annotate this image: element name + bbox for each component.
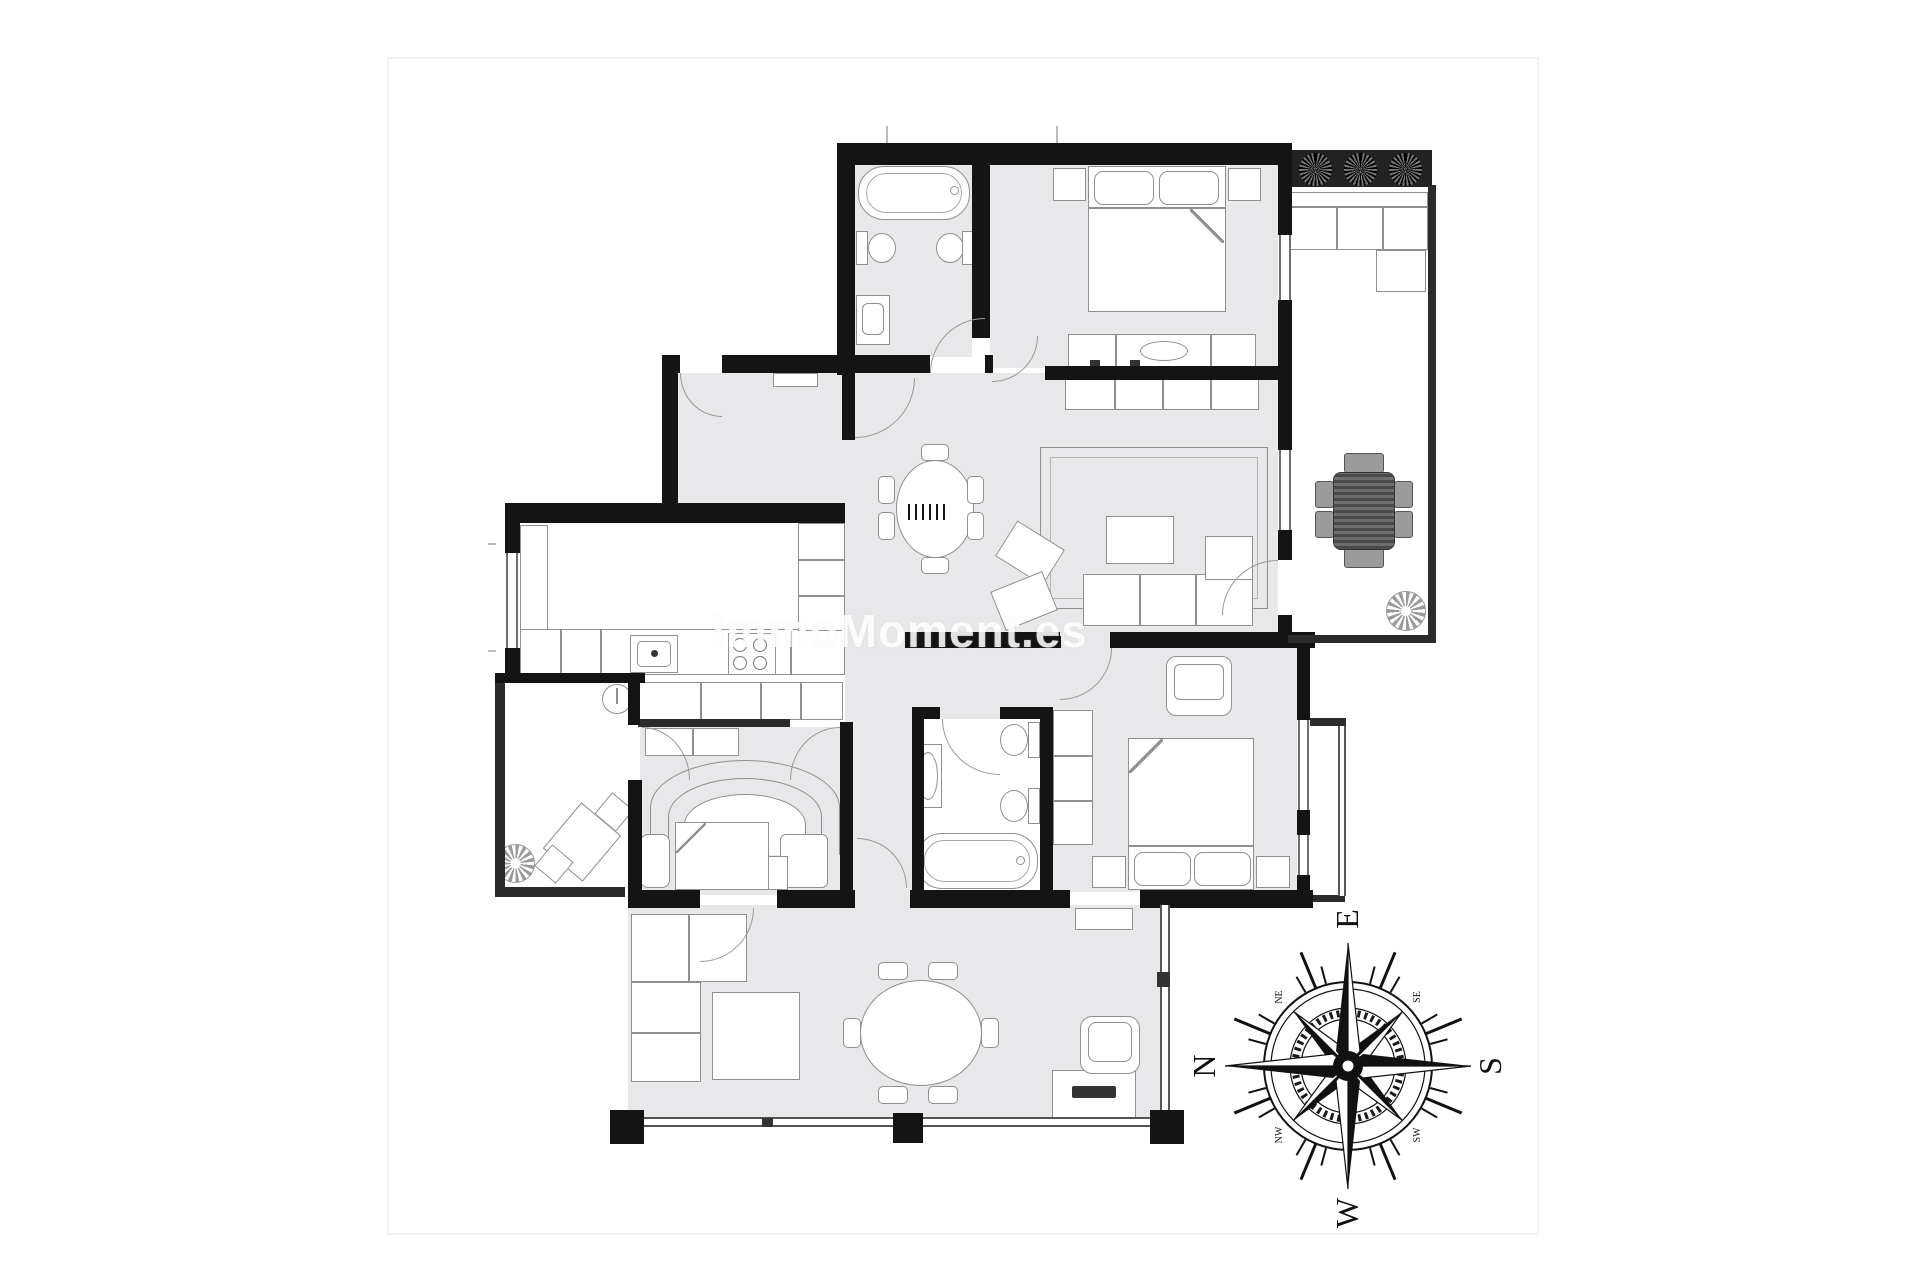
plant-icon — [1388, 152, 1423, 187]
wardrobe-icon — [1053, 710, 1093, 845]
wall — [628, 780, 642, 902]
dining-chair-icon — [878, 476, 895, 504]
terrace-chair-icon — [1344, 548, 1384, 568]
compass-label-west: W — [1329, 1197, 1365, 1228]
compass-label-north: N — [1186, 1054, 1222, 1077]
sofa-cushion-line — [1382, 206, 1384, 250]
sink-drain — [651, 650, 658, 657]
wall — [495, 673, 645, 683]
nightstand-icon — [1228, 168, 1261, 201]
wall — [1040, 707, 1053, 892]
vent-hatch — [908, 504, 948, 520]
pillow-icon — [1134, 852, 1191, 886]
oval-dining-table-icon — [860, 980, 982, 1086]
wall — [505, 648, 520, 675]
dining-chair-icon — [928, 962, 958, 980]
counter-divider — [560, 629, 562, 675]
window-icon — [506, 553, 518, 648]
railing — [1160, 905, 1170, 1121]
burner — [753, 656, 767, 670]
pillow-icon — [1159, 171, 1219, 205]
dining-chair-icon — [981, 1018, 999, 1048]
wall — [662, 355, 678, 520]
cabinet-divider — [760, 682, 762, 720]
radiator-icon — [773, 373, 818, 387]
pillow-icon — [1094, 171, 1154, 205]
bathtub-faucet-icon — [1016, 856, 1025, 865]
wardrobe-shelf — [1053, 755, 1093, 757]
railing-post — [893, 1113, 923, 1143]
dresser-divider — [1115, 334, 1117, 370]
terrace-wall — [1288, 635, 1436, 643]
wall — [1278, 615, 1292, 648]
wall — [1045, 366, 1292, 380]
dining-chair-icon — [967, 476, 984, 504]
burner — [733, 656, 747, 670]
wall — [1297, 875, 1310, 892]
wall — [505, 523, 520, 553]
wall — [638, 719, 790, 727]
blanket-fold — [1129, 739, 1163, 773]
office-chair-seat — [1088, 1022, 1132, 1062]
wall — [1297, 810, 1310, 835]
wall — [722, 355, 845, 373]
bidet-tank-icon — [1028, 788, 1040, 824]
wall — [910, 890, 1070, 908]
railing-post — [1150, 1110, 1184, 1144]
bathtub-inner-line — [866, 173, 962, 213]
pillow-icon — [1194, 852, 1251, 886]
sofa-cushion-line — [631, 1032, 701, 1034]
blanket-fold — [1190, 209, 1224, 243]
floor-plan-page: ImmoMoment.es — [0, 0, 1920, 1280]
dining-chair-icon — [878, 1086, 908, 1104]
sofa-back-line — [1290, 206, 1428, 208]
dining-chair-icon — [843, 1018, 861, 1048]
wall — [1278, 143, 1292, 235]
nightstand-icon — [1092, 856, 1126, 888]
wall — [628, 890, 700, 908]
wall — [912, 707, 924, 892]
terrace-chair-icon — [1394, 481, 1413, 508]
plant-icon — [1298, 152, 1333, 187]
dimension-tick — [1056, 126, 1058, 143]
wall — [840, 722, 853, 902]
compass-label-sw: SW — [1412, 1127, 1423, 1143]
nightstand-icon — [1053, 168, 1086, 201]
cabinet-divider — [800, 682, 802, 720]
wall — [1278, 530, 1292, 560]
dining-chair-icon — [878, 512, 895, 540]
dining-chair-icon — [878, 962, 908, 980]
kitchen-lower-cabinets — [638, 682, 843, 720]
balcony-wall — [1310, 718, 1346, 726]
bathtub-inner-line — [924, 840, 1030, 882]
counter-divider — [600, 629, 602, 675]
toilet-icon — [868, 233, 896, 263]
compass-label-se: SE — [1412, 991, 1423, 1003]
nightstand-icon — [1256, 856, 1290, 888]
terrace-chair-icon — [1394, 511, 1413, 538]
toilet-tank-icon — [856, 231, 868, 265]
step-icon — [1075, 908, 1133, 930]
railing-mark — [762, 1118, 773, 1127]
wall — [837, 143, 855, 375]
wardrobe-shelf — [1053, 800, 1093, 802]
wall — [777, 890, 855, 908]
side-table-icon — [768, 856, 788, 890]
dining-chair-icon — [928, 1086, 958, 1104]
plant-flower-icon — [1386, 591, 1426, 631]
wall — [505, 503, 845, 523]
cabinet-divider — [700, 682, 702, 720]
compass-label-south: S — [1472, 1057, 1508, 1075]
coffee-table-icon — [1106, 516, 1174, 564]
railing-mark — [1157, 972, 1170, 987]
wall — [837, 143, 1292, 165]
terrace-sofa-chaise — [1376, 250, 1426, 292]
wall — [495, 887, 625, 897]
dresser-divider — [1210, 334, 1212, 370]
sofa-cushion-line — [688, 914, 690, 982]
cabinet-divider — [692, 728, 694, 756]
cabinet-shelf-line — [798, 595, 845, 597]
terrace-sofa-icon — [1290, 192, 1428, 250]
compass-rose: E S W N NE SE SW NW — [1183, 901, 1513, 1231]
railing-post — [610, 1110, 644, 1144]
kitchen-counter-left — [520, 525, 548, 630]
watermark: ImmoMoment.es — [660, 604, 1140, 658]
sideboard-divider — [1162, 378, 1164, 410]
wall — [845, 355, 930, 373]
balcony-railing — [1338, 726, 1346, 896]
washbasin-bowl — [862, 303, 884, 335]
blanket-line — [1128, 845, 1254, 847]
wall — [628, 683, 640, 725]
cabinet-shelf-line — [798, 559, 845, 561]
window-icon — [1298, 720, 1309, 810]
dresser-bowl-icon — [1140, 341, 1188, 361]
terrace-chair-icon — [1315, 481, 1334, 508]
dimension-tick — [488, 543, 496, 545]
armchair-cushion — [1174, 664, 1224, 700]
fixture-mark — [616, 688, 618, 704]
sideboard-divider — [1210, 378, 1212, 410]
dining-chair-icon — [967, 512, 984, 540]
terrace-chair-icon — [1315, 511, 1334, 538]
sideboard-divider — [1114, 378, 1116, 410]
terrace-wall — [1428, 185, 1436, 643]
toilet-tank-icon — [1028, 722, 1040, 758]
wall — [1278, 378, 1292, 450]
window-icon — [1298, 835, 1309, 875]
wall — [842, 373, 855, 440]
window-icon — [1279, 450, 1291, 530]
bathtub-faucet-icon — [950, 186, 959, 195]
terrace-chair-icon — [1344, 453, 1384, 473]
monitor-icon — [1072, 1086, 1116, 1098]
wall — [912, 707, 940, 719]
blanket-fold — [676, 823, 706, 853]
compass-label-ne: NE — [1274, 990, 1285, 1003]
sofa-cushion-line — [1336, 206, 1338, 250]
wall — [1297, 648, 1310, 720]
vent-hatch — [798, 506, 836, 521]
wall — [495, 683, 505, 897]
outdoor-table-icon — [712, 992, 800, 1080]
window-icon — [1279, 235, 1291, 300]
dimension-tick — [886, 126, 888, 143]
cushion-icon — [640, 834, 670, 888]
sofa-cushion-line — [1195, 574, 1197, 626]
compass-label-nw: NW — [1274, 1126, 1285, 1143]
bidet-icon — [936, 233, 964, 263]
outdoor-table-icon — [1333, 472, 1395, 550]
dimension-tick — [488, 650, 496, 652]
compass-label-east: E — [1329, 909, 1365, 929]
dining-chair-icon — [921, 444, 949, 461]
toilet-icon — [1000, 724, 1028, 756]
wall — [972, 165, 990, 338]
bidet-icon — [1000, 790, 1028, 822]
compass-hub-center — [1343, 1061, 1354, 1072]
plant-icon — [1343, 152, 1378, 187]
dining-chair-icon — [921, 557, 949, 574]
